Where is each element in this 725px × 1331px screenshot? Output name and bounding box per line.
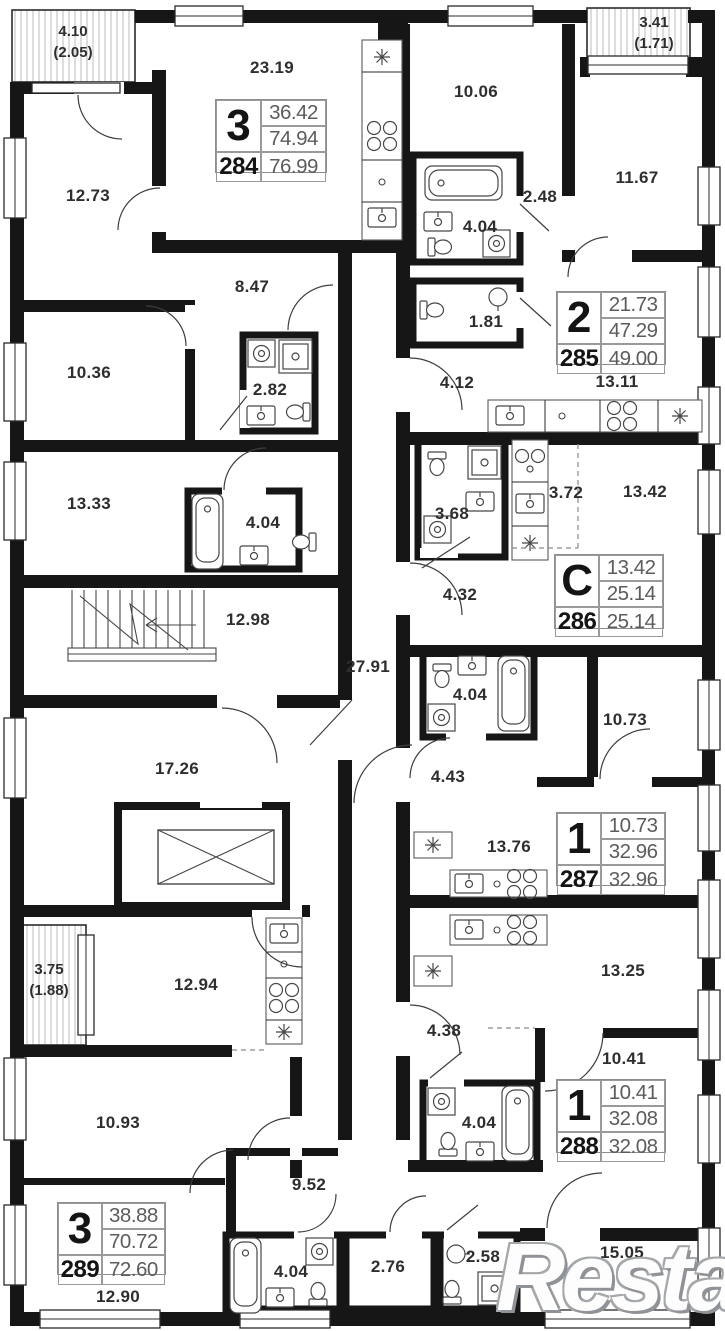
balcony-area: 4.10	[58, 23, 87, 40]
room-label: 13.25	[601, 961, 645, 981]
room-label: 13.11	[595, 372, 638, 392]
stairs	[68, 590, 216, 661]
room-label: 8.47	[235, 277, 269, 297]
room-label: 4.12	[440, 373, 474, 393]
apartment-number: 284	[216, 152, 261, 182]
apartment-card-287: 1 10.73 32.96 287 32.96	[556, 812, 666, 886]
room-label: 23.19	[250, 58, 294, 78]
apartment-total-area: 32.08	[601, 1132, 665, 1162]
apartment-rooms: С	[555, 555, 599, 607]
room-label: 10.41	[602, 1049, 646, 1069]
room-label: 12.98	[226, 610, 270, 630]
apartment-living-area: 10.41	[601, 1080, 665, 1106]
elevator	[118, 798, 286, 906]
apartment-area: 74.94	[261, 126, 326, 152]
apartment-rooms: 1	[557, 813, 601, 865]
room-label: 2.58	[466, 1247, 500, 1267]
room-label: 10.06	[454, 82, 498, 102]
apartment-living-area: 21.73	[601, 292, 665, 318]
room-label: 4.04	[453, 685, 487, 705]
balcony-label: 4.10 (2.05)	[53, 21, 92, 63]
apartment-area: 32.08	[601, 1106, 665, 1132]
room-label: 10.36	[67, 363, 111, 383]
room-label: 12.94	[174, 975, 218, 995]
room-label: 2.82	[253, 380, 287, 400]
apartment-living-area: 38.88	[102, 1203, 165, 1229]
apartment-number: 285	[557, 344, 601, 374]
apartment-total-area: 25.14	[599, 607, 663, 637]
room-label: 4.04	[246, 513, 280, 533]
room-label: 4.04	[274, 1262, 308, 1282]
balcony-reduced-area: (1.88)	[29, 982, 68, 999]
balcony-area: 3.75	[34, 961, 63, 978]
room-label: 2.48	[523, 187, 557, 207]
apartment-living-area: 10.73	[601, 813, 665, 839]
room-label: 1.81	[469, 312, 503, 332]
room-label: 3.68	[435, 504, 469, 524]
balcony-reduced-area: (2.05)	[53, 44, 92, 61]
apartment-area: 25.14	[599, 581, 663, 607]
room-label: 10.73	[603, 710, 647, 730]
apartment-number: 287	[557, 865, 601, 895]
balcony-reduced-area: (1.71)	[634, 35, 673, 52]
apartment-number: 288	[557, 1132, 601, 1162]
apartment-total-area: 76.99	[261, 152, 326, 182]
room-label: 4.04	[463, 217, 497, 237]
apartment-total-area: 72.60	[102, 1255, 165, 1285]
room-label: 4.04	[462, 1113, 496, 1133]
apartment-area: 70.72	[102, 1229, 165, 1255]
room-label: 12.73	[66, 186, 110, 206]
apartment-rooms: 3	[216, 100, 261, 152]
room-label: 2.76	[371, 1257, 405, 1277]
room-label: 13.42	[623, 482, 667, 502]
room-label: 27.91	[346, 657, 390, 677]
apartment-area: 47.29	[601, 318, 665, 344]
room-label: 4.38	[427, 1021, 461, 1041]
room-label: 12.90	[96, 1287, 140, 1307]
apartment-total-area: 32.96	[601, 865, 665, 895]
room-label: 9.52	[292, 1175, 326, 1195]
apartment-rooms: 2	[557, 292, 601, 344]
balcony-label: 3.41 (1.71)	[634, 12, 673, 54]
balcony-label: 3.75 (1.88)	[29, 959, 68, 1001]
apartment-card-289: 3 38.88 70.72 289 72.60	[57, 1202, 166, 1275]
room-label: 15.05	[600, 1243, 644, 1263]
apartment-total-area: 49.00	[601, 344, 665, 374]
apartment-area: 32.96	[601, 839, 665, 865]
room-label: 10.93	[96, 1113, 140, 1133]
apartment-number: 286	[555, 607, 599, 637]
apartment-rooms: 3	[58, 1203, 102, 1255]
room-label: 13.76	[487, 837, 531, 857]
room-label: 4.32	[443, 585, 477, 605]
room-label: 4.43	[431, 767, 465, 787]
room-label: 3.72	[549, 483, 583, 503]
apartment-card-286: С 13.42 25.14 286 25.14	[554, 554, 664, 629]
apartment-card-288: 1 10.41 32.08 288 32.08	[556, 1079, 666, 1153]
apartment-living-area: 36.42	[261, 100, 326, 126]
apartment-rooms: 1	[557, 1080, 601, 1132]
room-label: 11.67	[615, 168, 658, 188]
apartment-card-284: 3 36.42 74.94 284 76.99	[215, 99, 327, 173]
room-label: 17.26	[155, 759, 199, 779]
balcony-area: 3.41	[639, 14, 668, 31]
apartment-living-area: 13.42	[599, 555, 663, 581]
apartment-card-285: 2 21.73 47.29 285 49.00	[556, 291, 666, 365]
floor-plan: 23.19 12.73 10.06 11.67 2.48 4.04 1.81 4…	[0, 0, 725, 1331]
room-label: 13.33	[67, 494, 111, 514]
apartment-number: 289	[58, 1255, 102, 1285]
